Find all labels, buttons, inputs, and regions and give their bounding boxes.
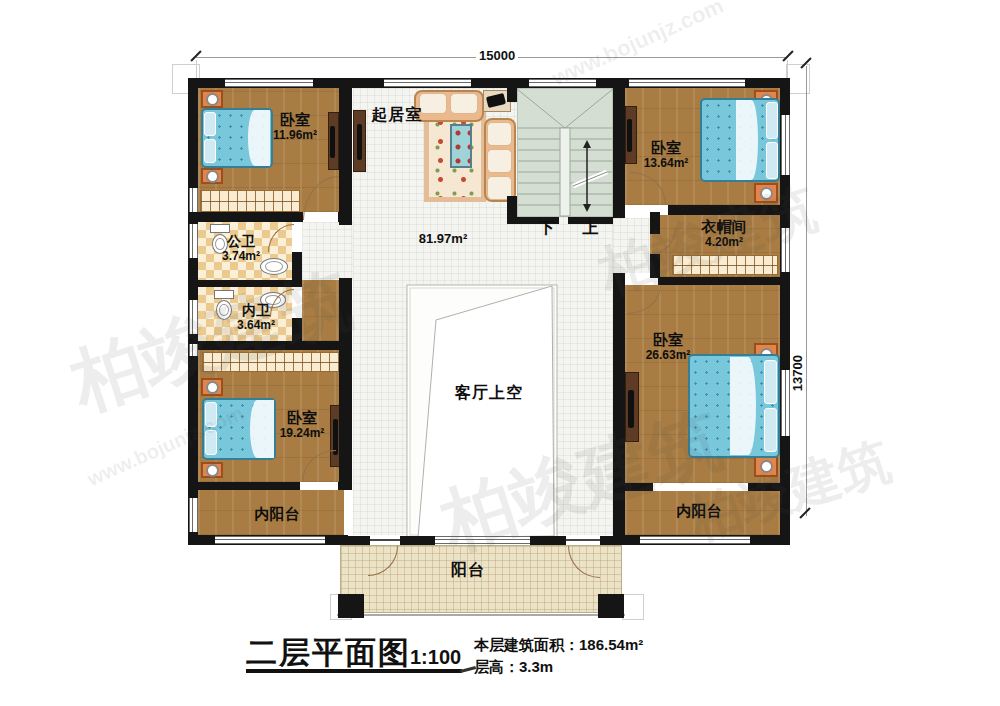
room-name: 卧室 xyxy=(644,140,689,157)
nightstand xyxy=(201,378,223,396)
window xyxy=(225,79,313,87)
room-name: 内卫 xyxy=(237,303,275,319)
sofa-cushion xyxy=(487,149,512,173)
window xyxy=(189,300,198,334)
room-area: 11.96m² xyxy=(273,129,317,142)
room-label-living-room: 起居室 xyxy=(372,106,423,124)
pillow xyxy=(766,102,778,139)
blanket-fold xyxy=(730,357,756,455)
wall xyxy=(198,280,292,287)
room-area: 81.97m² xyxy=(419,232,467,247)
nightstand xyxy=(201,90,223,108)
tv-icon xyxy=(357,124,362,160)
blanket-fold xyxy=(736,100,758,180)
sofa-cushion xyxy=(419,93,447,114)
room-name: 内阳台 xyxy=(255,506,300,523)
wall xyxy=(198,341,352,350)
room-label-public-bathroom: 公卫 3.74m² xyxy=(222,234,260,263)
page-title: 二层平面图 xyxy=(246,632,411,674)
dimension-tick xyxy=(799,507,810,518)
staircase xyxy=(517,88,613,217)
window xyxy=(781,370,790,436)
room-name: 卧室 xyxy=(646,332,691,349)
nightstand xyxy=(201,168,223,184)
room-area: 3.74m² xyxy=(222,250,260,263)
floor-height-label: 层高：3.3m xyxy=(474,658,553,677)
wall xyxy=(748,483,780,491)
room-area: 3.64m² xyxy=(237,319,275,332)
window xyxy=(781,228,790,272)
window xyxy=(189,224,198,258)
balcony-door-window xyxy=(435,536,530,544)
room-name: 阳台 xyxy=(451,561,485,579)
room-label-inner-balcony-left: 内阳台 xyxy=(255,506,300,523)
floor-hall-notch xyxy=(302,222,353,280)
wall xyxy=(650,212,660,234)
wall xyxy=(292,252,302,287)
balcony-rail xyxy=(337,614,625,616)
room-name: 客厅上空 xyxy=(455,384,523,402)
sofa-cushion xyxy=(450,93,478,114)
nightstand xyxy=(201,462,223,478)
window xyxy=(629,79,745,87)
closet-hatch xyxy=(200,190,300,212)
title-underline xyxy=(246,669,462,673)
wall xyxy=(600,536,620,545)
stairs-up-label: 上 xyxy=(583,219,600,237)
extension-line xyxy=(787,60,788,78)
room-name: 内阳台 xyxy=(677,503,722,520)
room-label-void: 客厅上空 xyxy=(455,384,523,402)
corner-marker xyxy=(622,594,644,620)
window xyxy=(384,79,471,87)
stairs-up-text: 上 xyxy=(583,219,600,237)
wall xyxy=(198,482,300,490)
room-area: 4.20m² xyxy=(702,236,747,249)
window xyxy=(640,536,750,544)
wall xyxy=(339,88,352,225)
dimension-line-right xyxy=(806,66,807,516)
window xyxy=(781,115,790,175)
window xyxy=(189,344,198,356)
room-label-cloakroom: 衣帽间 4.20m² xyxy=(702,219,747,249)
room-name: 卧室 xyxy=(273,112,317,129)
nightstand xyxy=(754,183,778,203)
wall xyxy=(338,482,352,490)
room-label-bedroom-bottom-left: 卧室 19.24m² xyxy=(280,410,325,440)
room-label-bedroom-bottom-right: 卧室 26.63m² xyxy=(646,332,691,362)
stairs-down-label: 下 xyxy=(539,219,556,237)
closet-hatch xyxy=(672,255,778,275)
blanket-fold xyxy=(248,110,270,166)
pillow xyxy=(764,360,777,404)
toilet-icon xyxy=(210,224,230,233)
balcony-post xyxy=(338,594,364,618)
room-label-bedroom-top-left: 卧室 11.96m² xyxy=(273,112,317,142)
room-name: 起居室 xyxy=(372,106,423,124)
room-label-inner-balcony-right: 内阳台 xyxy=(677,503,722,520)
room-area: 19.24m² xyxy=(280,427,325,440)
tv-icon xyxy=(628,390,634,428)
pillow xyxy=(205,430,217,455)
pillow xyxy=(766,142,778,179)
window xyxy=(189,188,198,212)
wall xyxy=(400,536,435,545)
wall xyxy=(625,483,653,491)
pillow xyxy=(205,402,217,427)
wall xyxy=(348,536,370,545)
wall xyxy=(338,212,352,222)
wall xyxy=(650,254,660,278)
window xyxy=(215,536,325,544)
wall xyxy=(613,273,625,545)
closet-hatch xyxy=(202,352,340,372)
stairs-down-text: 下 xyxy=(539,219,556,237)
room-name: 公卫 xyxy=(222,234,260,250)
wall xyxy=(339,278,352,490)
room-area: 26.63m² xyxy=(646,349,691,362)
dimension-label-width: 15000 xyxy=(476,48,518,63)
nightstand xyxy=(754,455,778,477)
pillow xyxy=(204,139,216,163)
pillow xyxy=(764,408,777,452)
void-outline xyxy=(406,284,558,540)
window xyxy=(189,498,198,532)
wall xyxy=(507,80,517,102)
wall xyxy=(658,277,780,285)
balcony-post xyxy=(598,594,624,618)
floor-plan-canvas: 卧室 11.96m² 起居室 81.97m² 卧室 13.64m² 衣帽间 4.… xyxy=(0,0,1000,706)
floor-vestibule xyxy=(302,280,342,341)
blanket-fold xyxy=(250,400,274,458)
wall xyxy=(668,205,780,215)
pillow xyxy=(204,112,216,136)
room-area: 13.64m² xyxy=(644,157,689,170)
wall xyxy=(198,212,303,222)
toilet-icon xyxy=(214,290,234,299)
room-label-inner-bathroom: 内卫 3.64m² xyxy=(237,303,275,332)
extension-line xyxy=(196,60,197,78)
room-label-balcony: 阳台 xyxy=(451,561,485,579)
coffee-table xyxy=(450,124,472,168)
toilet-icon xyxy=(216,300,232,320)
hall-area-label: 81.97m² xyxy=(419,232,467,247)
tv-icon xyxy=(627,119,632,152)
sofa-cushion xyxy=(487,122,512,146)
room-label-bedroom-top-right: 卧室 13.64m² xyxy=(644,140,689,170)
floor-cloak-notch xyxy=(613,218,650,273)
window xyxy=(529,79,596,87)
dimension-tick xyxy=(782,50,793,61)
wall xyxy=(613,88,625,218)
tv-icon xyxy=(330,126,335,158)
sink-icon xyxy=(260,258,288,275)
room-name: 衣帽间 xyxy=(702,219,747,236)
room-name: 卧室 xyxy=(280,410,325,427)
floor-area-label: 本层建筑面积：186.54m² xyxy=(474,636,643,655)
scale-label: 1:100 xyxy=(410,646,461,669)
dimension-label-height: 13700 xyxy=(790,352,805,394)
wall xyxy=(530,536,566,545)
